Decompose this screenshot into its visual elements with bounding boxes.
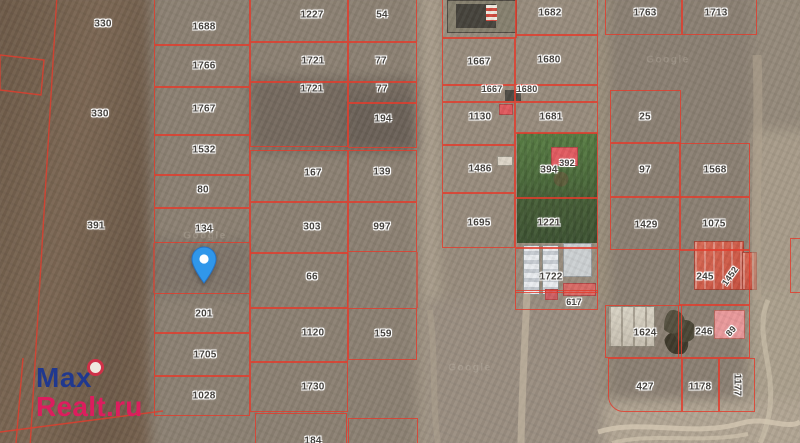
parcel-label: 330 — [94, 19, 111, 30]
parcel-label: 25 — [639, 112, 651, 123]
parcel-label: 167 — [304, 168, 321, 179]
parcel-label: 1028 — [192, 391, 215, 402]
parcel-label: 1682 — [538, 8, 561, 19]
location-pin-icon[interactable] — [191, 246, 217, 289]
parcel-label: 330 — [91, 109, 108, 120]
watermark-max: Max — [36, 362, 92, 393]
map-canvas[interactable]: Max Realt.ru 168817661767153280134201170… — [0, 0, 800, 443]
parcel-label: 1486 — [468, 164, 491, 175]
pin-glyph — [191, 246, 217, 284]
parcel-246[interactable] — [678, 305, 750, 358]
parcel-label: 1695 — [467, 218, 490, 229]
parcel-label: 427 — [636, 382, 653, 393]
site-watermark: Max Realt.ru — [36, 362, 143, 423]
parcel-label: 1721 — [301, 56, 324, 67]
parcel-245[interactable] — [679, 250, 750, 305]
parcel-label: 1130 — [469, 112, 492, 123]
parcel-label: 77 — [375, 56, 387, 67]
parcel-label: 394 — [540, 165, 557, 176]
parcel-label: 184 — [304, 436, 321, 443]
parcel-1667[interactable] — [442, 85, 515, 102]
parcel-unlabeled[interactable] — [255, 413, 347, 443]
parcel-label: 139 — [373, 167, 390, 178]
parcel-label: 1221 — [537, 218, 560, 229]
parcel-label: 1681 — [539, 112, 562, 123]
terrain-patch — [752, 0, 800, 130]
watermark-realt: Realt.ru — [36, 391, 143, 423]
parcel-label: 392 — [559, 158, 575, 168]
parcel-194[interactable] — [348, 103, 417, 148]
parcel-label: 1730 — [301, 382, 324, 393]
parcel-label: 1178 — [689, 382, 712, 393]
parcel-1722[interactable] — [515, 248, 598, 293]
parcel-unlabeled[interactable] — [348, 418, 418, 443]
parcel-1721[interactable] — [250, 42, 348, 82]
parcel-label: 997 — [373, 222, 390, 233]
parcel-66[interactable] — [250, 253, 348, 308]
parcel-unlabeled[interactable] — [790, 238, 800, 293]
parcel-label: 1722 — [539, 272, 562, 283]
parcel-label: 617 — [566, 297, 582, 307]
parcel-label: 1177 — [732, 374, 743, 397]
parcel-1120[interactable] — [250, 308, 348, 362]
parcel-label: 201 — [195, 309, 212, 320]
parcel-label: 1624 — [633, 328, 656, 339]
parcel-1227[interactable] — [250, 0, 348, 42]
parcel-label: 54 — [376, 10, 388, 21]
parcel-label: 1120 — [302, 328, 325, 339]
parcel-617[interactable] — [515, 290, 598, 310]
parcel-label: 80 — [197, 185, 209, 196]
parcel-label: 1688 — [192, 22, 215, 33]
parcel-label: 245 — [696, 272, 713, 283]
parcel-1721[interactable] — [250, 82, 348, 147]
parcel-label: 1429 — [634, 220, 657, 231]
parcel-label: 1667 — [467, 57, 490, 68]
parcel-label: 1713 — [704, 8, 727, 19]
parcel-label: 1721 — [300, 84, 323, 95]
parcel-label: 159 — [374, 329, 391, 340]
parcel-label: 1680 — [537, 55, 560, 66]
parcel-303[interactable] — [250, 202, 348, 253]
parcel-label: 391 — [87, 221, 104, 232]
parcel-label: 1763 — [633, 8, 656, 19]
parcel-167[interactable] — [250, 150, 348, 202]
parcel-label: 303 — [303, 222, 320, 233]
parcel-label: 1767 — [192, 104, 215, 115]
parcel-label: 97 — [639, 165, 651, 176]
parcel-label: 77 — [376, 84, 388, 95]
parcel-label: 1568 — [703, 165, 726, 176]
parcel-label: 1667 — [482, 84, 503, 94]
watermark-logo-icon — [87, 359, 104, 376]
parcel-label: 66 — [306, 272, 318, 283]
parcel-label: 1705 — [193, 350, 216, 361]
parcel-1130[interactable] — [442, 102, 515, 145]
parcel-label: 134 — [195, 224, 212, 235]
parcel-label: 1532 — [192, 145, 215, 156]
parcel-label: 1680 — [517, 84, 538, 94]
parcel-label: 246 — [695, 327, 712, 338]
parcel-label: 1766 — [192, 61, 215, 72]
parcel-unlabeled[interactable] — [442, 0, 517, 38]
parcel-label: 1075 — [702, 219, 725, 230]
parcel-label: 1227 — [300, 10, 323, 21]
parcel-1730[interactable] — [250, 362, 348, 412]
parcel-label: 194 — [374, 114, 391, 125]
terrain-patch — [428, 300, 603, 443]
parcel-54[interactable] — [348, 0, 417, 42]
